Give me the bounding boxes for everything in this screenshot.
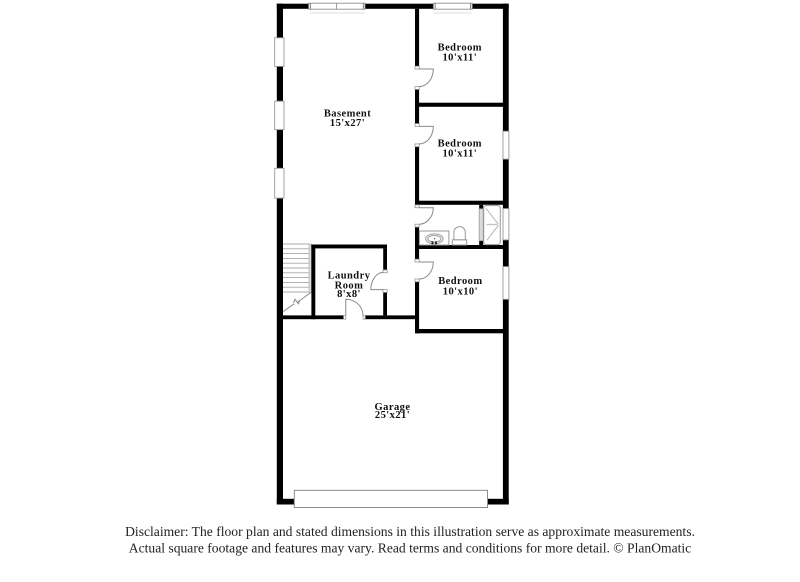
svg-text:15'x27': 15'x27' <box>330 118 365 129</box>
svg-text:Disclaimer: The floor plan and: Disclaimer: The floor plan and stated di… <box>125 524 695 539</box>
svg-text:10'x10': 10'x10' <box>443 286 478 297</box>
svg-text:10'x11': 10'x11' <box>442 149 477 160</box>
svg-text:Actual square footage and feat: Actual square footage and features may v… <box>129 541 691 556</box>
svg-text:25'x21': 25'x21' <box>375 410 410 421</box>
svg-text:10'x11': 10'x11' <box>442 53 477 64</box>
svg-text:8'x8': 8'x8' <box>337 289 361 300</box>
